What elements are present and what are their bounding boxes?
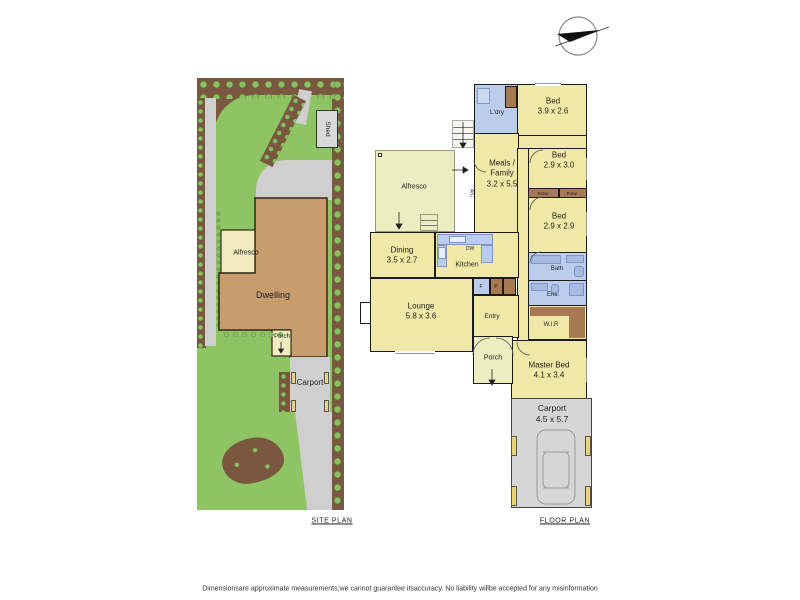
wir-label: W.I.R bbox=[544, 322, 559, 330]
site-dwelling-label: Dwelling bbox=[256, 290, 290, 302]
window bbox=[586, 158, 589, 180]
blob-tree bbox=[250, 445, 261, 456]
laundry-trough-icon bbox=[477, 88, 490, 104]
kitchen-bench-right bbox=[481, 245, 493, 263]
site-plan-title: SITE PLAN bbox=[311, 516, 352, 525]
carport-post bbox=[585, 486, 591, 506]
dw-label: DW bbox=[466, 246, 474, 253]
bed2-label: Bed2.9 x 3.0 bbox=[544, 151, 575, 172]
ac-label: A/C bbox=[468, 189, 475, 197]
blob-tree bbox=[262, 461, 273, 472]
window bbox=[586, 358, 589, 382]
compass-icon bbox=[554, 12, 610, 60]
dining-label: Dining3.5 x 2.7 bbox=[387, 246, 418, 267]
bed1-label: Bed3.9 x 2.6 bbox=[538, 97, 569, 118]
bath-wc-icon bbox=[574, 266, 584, 277]
alfresco-label: Alfresco bbox=[401, 182, 426, 191]
ens-shower-icon bbox=[569, 283, 584, 296]
master-label: Master Bed4.1 x 3.4 bbox=[529, 361, 570, 382]
site-plan: Shed Alfresco Dwelling Porch Carport bbox=[197, 78, 344, 510]
floor-plan-title: FLOOR PLAN bbox=[540, 516, 590, 525]
ens-vanity-icon bbox=[531, 283, 548, 291]
ens-label: Ens. bbox=[547, 292, 559, 300]
kitchen-sink-icon bbox=[449, 236, 466, 243]
bath-label: Bath bbox=[551, 266, 563, 274]
blob-tree bbox=[232, 460, 243, 471]
laundry-linen-cupboard bbox=[505, 86, 517, 108]
bed3-label: Bed2.9 x 2.9 bbox=[544, 212, 575, 233]
kitchen-stove-icon bbox=[438, 247, 446, 259]
lounge-label: Lounge5.8 x 3.6 bbox=[406, 302, 437, 323]
floorplan-page: Shed Alfresco Dwelling Porch Carport bbox=[0, 0, 800, 600]
entry-label: Entry bbox=[484, 313, 499, 321]
window bbox=[586, 212, 589, 236]
laundry-label: L'dry bbox=[490, 109, 504, 117]
meals-label: Meals / Family 3.2 x 5.5 bbox=[487, 158, 518, 189]
site-porch-label: Porch bbox=[274, 334, 290, 342]
bathtub-icon bbox=[531, 255, 561, 264]
rear-steps bbox=[452, 120, 474, 148]
hall-cupboard bbox=[503, 278, 516, 295]
wir-robe-right bbox=[569, 307, 585, 338]
window bbox=[395, 351, 435, 354]
carport-post bbox=[585, 436, 591, 456]
robe2-label: Robe bbox=[567, 191, 578, 197]
bath-vanity-icon bbox=[566, 255, 584, 263]
porch-label: Porch bbox=[484, 353, 502, 362]
carport-label: Carport4.5 x 5.7 bbox=[536, 403, 569, 425]
carport-post bbox=[324, 400, 329, 412]
disclaimer: Dimensionsare approximate measurements;w… bbox=[202, 584, 598, 593]
carport-post bbox=[291, 372, 296, 384]
alfresco-steps bbox=[420, 214, 438, 231]
site-alfresco-label: Alfresco bbox=[233, 248, 258, 257]
carport-post bbox=[511, 436, 517, 456]
robe1-label: Robe bbox=[538, 191, 549, 197]
lounge-wall-feature bbox=[360, 302, 371, 324]
carport-post bbox=[324, 372, 329, 384]
carport-post bbox=[511, 486, 517, 506]
kitchen-label: Kitchen bbox=[455, 260, 478, 269]
site-carport-label: Carport bbox=[297, 378, 324, 388]
pantry-label: P bbox=[494, 284, 497, 291]
fridge-label: F bbox=[479, 284, 482, 291]
garden-strip-carport bbox=[279, 372, 290, 412]
window bbox=[535, 83, 561, 86]
alfresco-post bbox=[378, 153, 382, 157]
carport-post bbox=[291, 400, 296, 412]
